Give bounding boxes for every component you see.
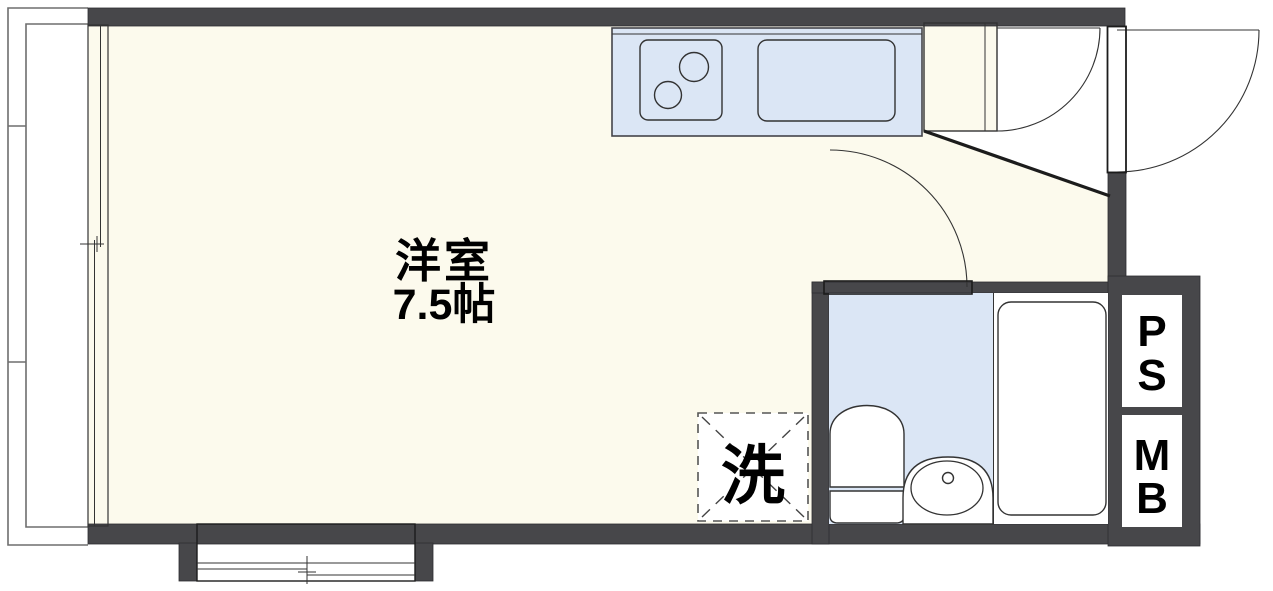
floor-plan: P S M B 洗 洋室 7.5帖	[0, 0, 1273, 591]
floor-plan-drawing: P S M B 洗 洋室 7.5帖	[0, 0, 1273, 591]
pipe-space-label-bottom: S	[1137, 351, 1166, 400]
meter-box-label-top: M	[1134, 431, 1171, 480]
room-labels: 洋室 7.5帖	[393, 235, 496, 329]
wall-right-entry	[1108, 172, 1126, 292]
entrance-door	[1108, 27, 1260, 173]
room-name-label: 洋室	[395, 235, 493, 287]
laundry-label: 洗	[721, 440, 785, 512]
pipe-space-label-top: P	[1137, 307, 1166, 356]
balcony	[8, 8, 88, 545]
wall-baywindow-post-left	[179, 543, 197, 581]
balcony-inner-rail	[26, 24, 88, 527]
wall-bottom	[88, 524, 1200, 544]
entrance-door-swing-arc	[1117, 30, 1259, 172]
bathroom	[829, 293, 1108, 524]
laundry-space: 洗	[698, 413, 808, 521]
kitchen	[612, 28, 922, 136]
meter-box: M B	[1122, 415, 1182, 527]
wall-bathroom-left	[812, 282, 829, 544]
toilet-tank	[830, 491, 904, 523]
washbasin-drain	[943, 473, 954, 484]
meter-box-label-bottom: B	[1136, 474, 1168, 523]
entrance-door-leaf	[1108, 27, 1127, 173]
room-size-label: 7.5帖	[393, 281, 496, 329]
wall-baywindow-post-right	[415, 543, 433, 581]
balcony-outer-rail	[8, 8, 88, 545]
washbasin-icon	[903, 457, 993, 524]
washbasin-body	[903, 457, 993, 524]
pipe-space: P S	[1122, 295, 1182, 407]
bathtub-icon	[998, 302, 1106, 515]
toilet-bowl	[830, 406, 904, 488]
toilet-icon	[830, 406, 904, 524]
wall-bathroom-top	[812, 282, 1110, 293]
